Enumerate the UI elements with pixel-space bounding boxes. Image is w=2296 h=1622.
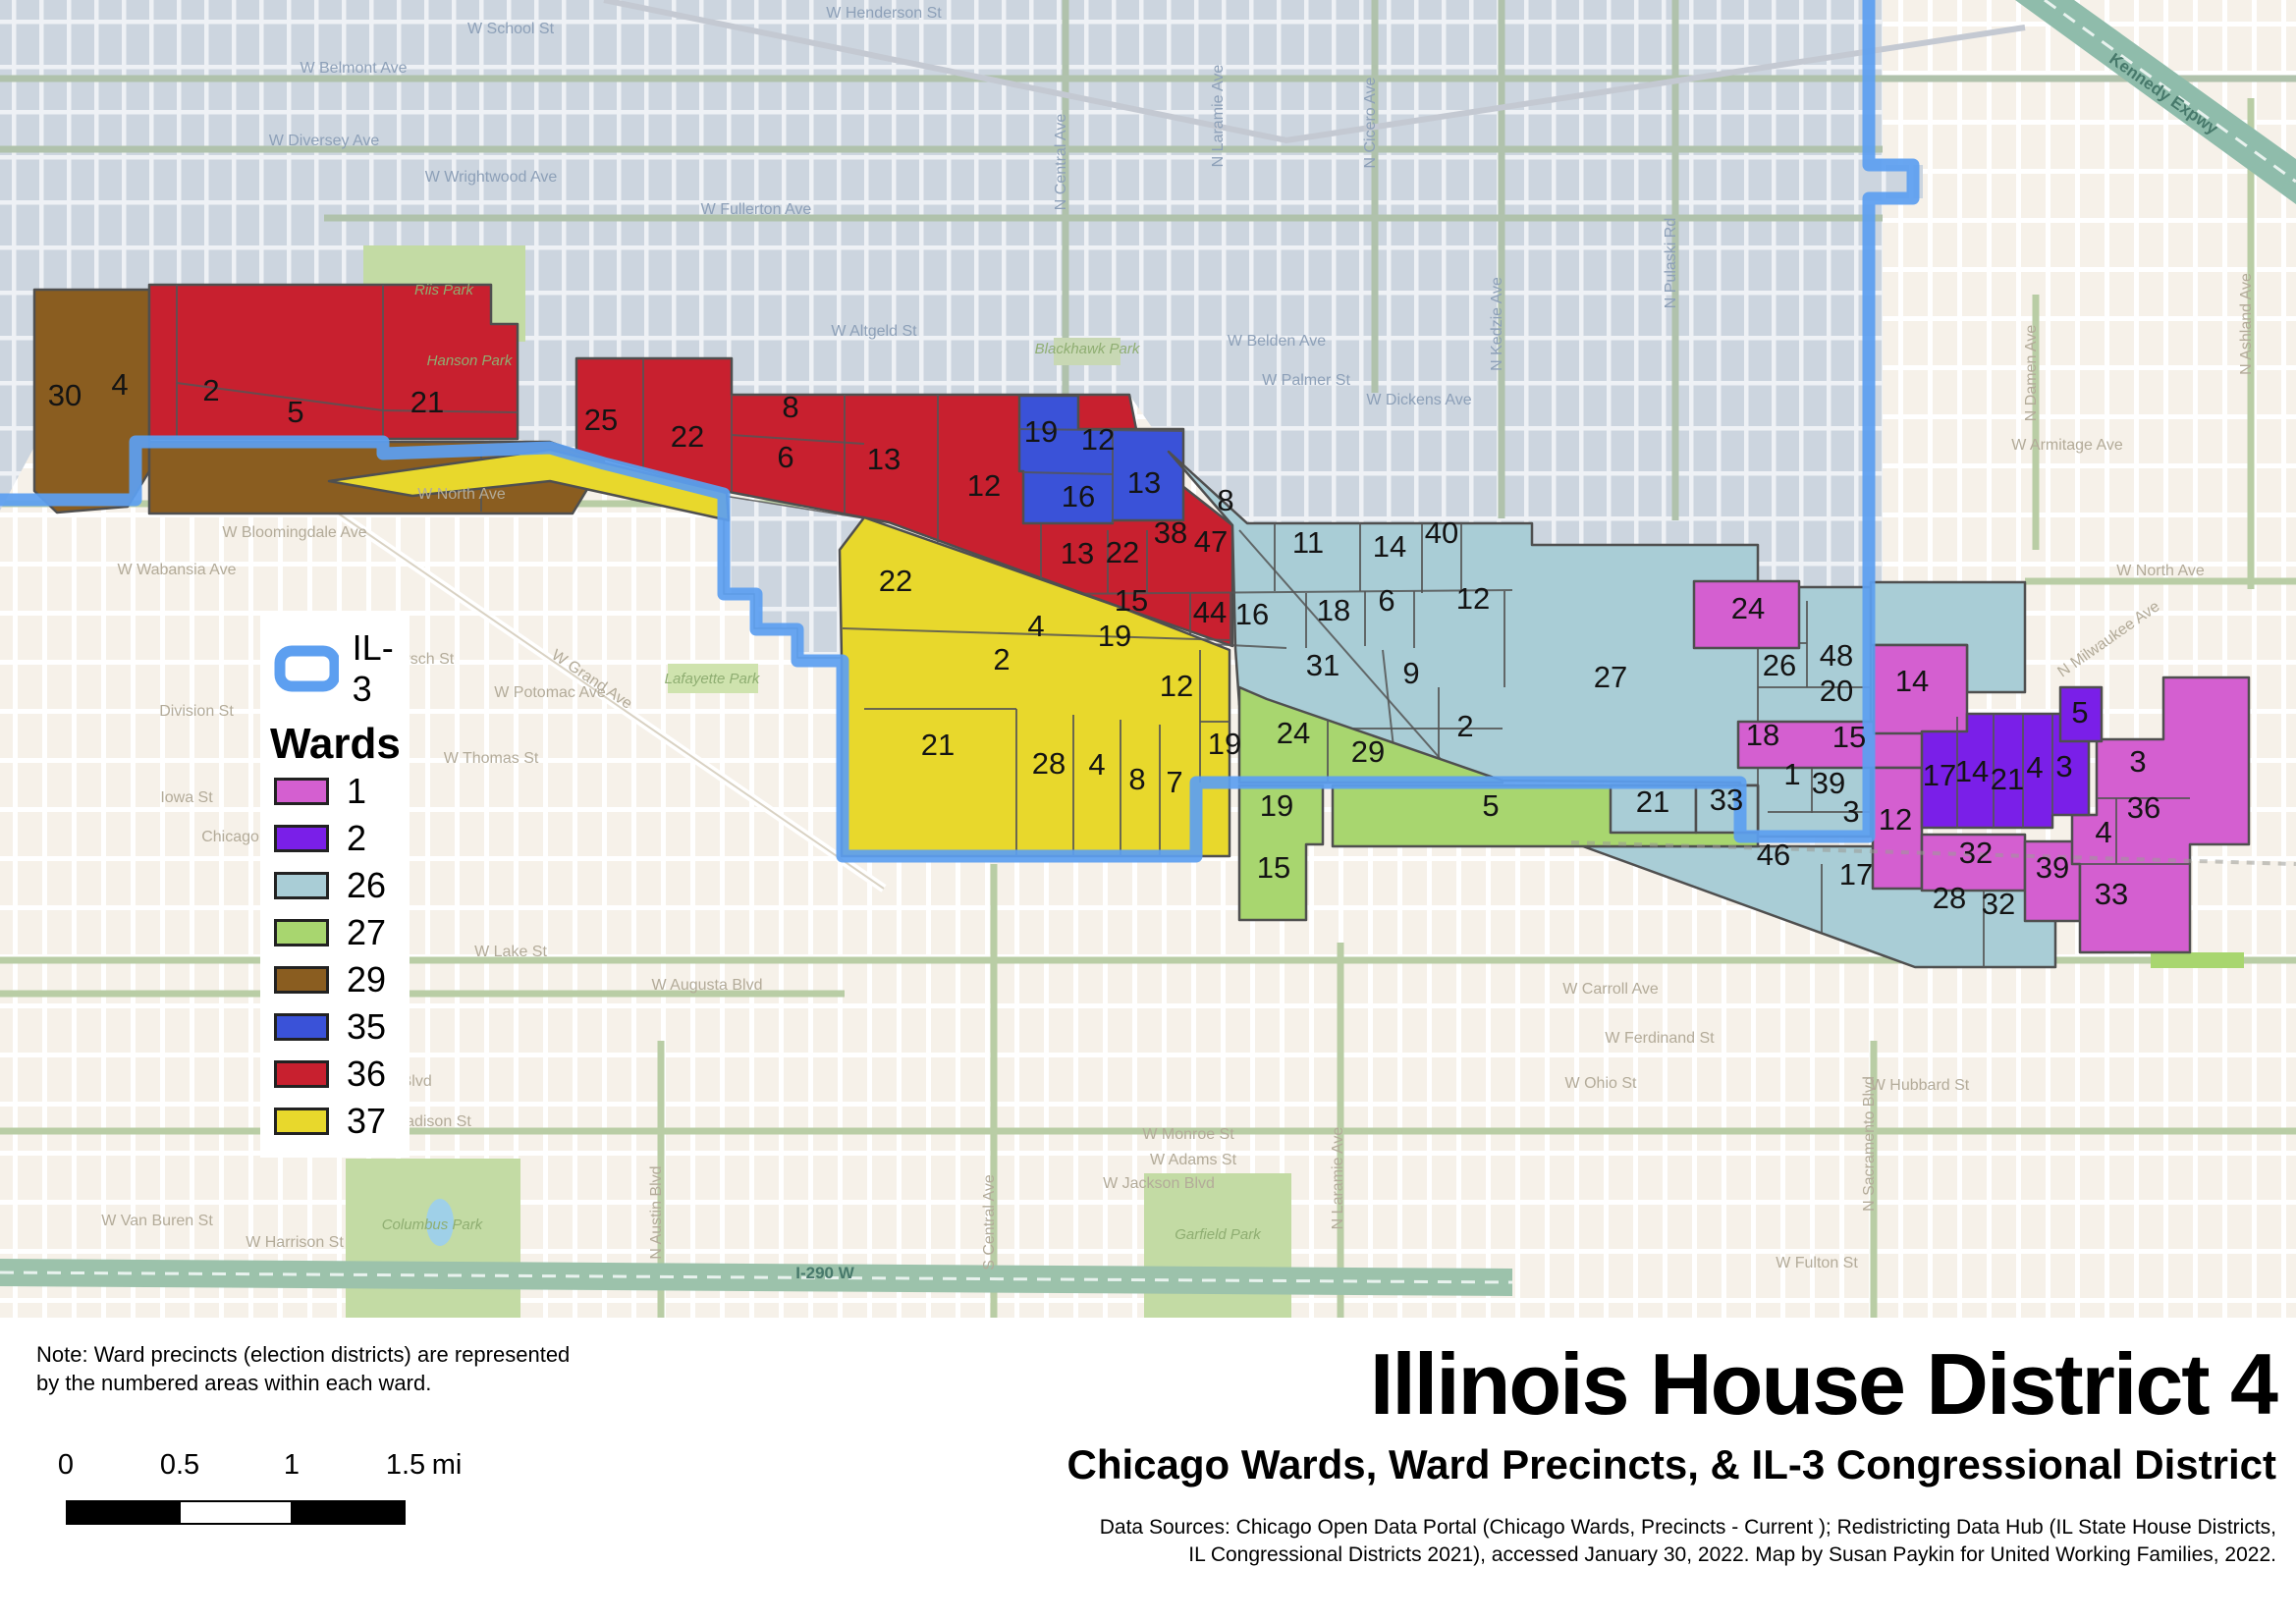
legend-swatch (274, 1108, 329, 1135)
precinct-label: 24 (1731, 591, 1765, 625)
legend-swatch (274, 1060, 329, 1088)
map-subtitle: Chicago Wards, Ward Precincts, & IL-3 Co… (1067, 1441, 2276, 1488)
park-label: Hanson Park (427, 352, 514, 369)
street-label: W Palmer St (1262, 372, 1350, 389)
precinct-label: 32 (1959, 836, 1993, 870)
precinct-label: 21 (410, 385, 444, 419)
precinct-label: 4 (2095, 815, 2111, 849)
legend-entry-ward-36: 36 (274, 1059, 410, 1088)
precinct-label: 13 (867, 442, 901, 476)
note-line1: Note: Ward precincts (election districts… (36, 1341, 570, 1370)
precinct-label: 30 (48, 378, 82, 412)
legend-entry-ward-1: 1 (274, 777, 410, 805)
precinct-label: 19 (1260, 788, 1293, 823)
precinct-label: 6 (1378, 583, 1394, 618)
precinct-label: 21 (1991, 762, 2024, 796)
precinct-label: 13 (1061, 536, 1094, 570)
street-label: W Ferdinand St (1605, 1030, 1715, 1047)
precinct-label: 12 (1879, 802, 1912, 837)
scale-unit: mi (432, 1449, 463, 1482)
street-label: W Wabansia Ave (118, 562, 237, 578)
precinct-label: 21 (1636, 784, 1669, 819)
legend-swatch (274, 778, 329, 805)
legend-swatch (274, 1013, 329, 1041)
street-label: N Ashland Ave (2238, 273, 2255, 375)
precinct-label: 9 (1402, 656, 1419, 690)
precinct-label: 44 (1193, 595, 1227, 629)
street-label: W Fullerton Ave (701, 201, 812, 218)
scale-seg-black1 (68, 1502, 181, 1523)
precinct-label: 38 (1154, 515, 1187, 550)
scale-tick: 1.5 (386, 1449, 425, 1482)
precinct-label: 5 (1482, 788, 1499, 823)
precinct-label: 47 (1194, 524, 1228, 559)
street-label: N Cicero Ave (1362, 77, 1379, 168)
legend-entry-ward-35: 35 (274, 1012, 410, 1041)
legend: IL-3 Wards 12262729353637 (260, 612, 410, 1158)
precinct-label: 20 (1820, 674, 1853, 708)
street-label: W Armitage Ave (2011, 437, 2123, 454)
precinct-label: 39 (1812, 766, 1845, 800)
title-block: Illinois House District 4 Chicago Wards,… (1067, 1341, 2276, 1568)
precinct-label: 4 (111, 367, 128, 402)
park-label: Columbus Park (382, 1216, 484, 1233)
map-poster: W Belmont AveW Diversey AveW Fullerton A… (0, 0, 2296, 1622)
legend-entry-ward-27: 27 (274, 918, 410, 946)
park-label: Riis Park (414, 282, 475, 298)
legend-il3-label: IL-3 (353, 627, 410, 710)
precinct-label: 27 (1594, 660, 1627, 694)
precinct-label: 11 (1292, 525, 1324, 560)
street-label: W Harrison St (246, 1234, 344, 1251)
street-label: W Lake St (474, 944, 547, 960)
street-label: W Belmont Ave (300, 60, 407, 77)
legend-entry-ward-37: 37 (274, 1107, 410, 1135)
street-label: W Henderson St (826, 5, 942, 22)
precinct-label: 3 (2129, 744, 2146, 779)
precinct-label: 5 (287, 395, 303, 429)
legend-entry-ward-29: 29 (274, 965, 410, 994)
precinct-label: 17 (1839, 857, 1873, 892)
street-label: W North Ave (417, 486, 506, 503)
note-line2: by the numbered areas within each ward. (36, 1370, 570, 1398)
precinct-label: 14 (1895, 664, 1929, 698)
street-label: N Kedzie Ave (1489, 277, 1505, 371)
precinct-label: 1 (1783, 757, 1800, 791)
legend-ward-number: 2 (347, 818, 366, 859)
precinct-label: 18 (1746, 718, 1779, 752)
precinct-label: 15 (1832, 720, 1866, 754)
street-label: N Sacramento Blvd (1861, 1076, 1878, 1212)
street-label: W Monroe St (1142, 1126, 1234, 1143)
street-label: W Ohio St (1565, 1075, 1637, 1092)
legend-ward-number: 29 (347, 959, 386, 1000)
precinct-label: 2 (993, 642, 1010, 676)
precinct-label: 39 (2036, 850, 2069, 885)
precinct-label: 12 (1160, 669, 1193, 703)
precinct-label: 21 (921, 728, 955, 762)
legend-swatch (274, 966, 329, 994)
precinct-label: 28 (1933, 881, 1966, 915)
precinct-label: 33 (1710, 783, 1743, 817)
precinct-label: 28 (1032, 746, 1066, 781)
precinct-label: 25 (584, 403, 618, 437)
street-label: W Bloomingdale Ave (222, 524, 366, 541)
street-label: W Belden Ave (1228, 333, 1326, 350)
scale-tick: 0.5 (160, 1449, 199, 1482)
park-label: Lafayette Park (665, 671, 761, 687)
il3-boundary-icon (272, 645, 339, 692)
precinct-label: 29 (1351, 734, 1385, 769)
legend-ward-number: 35 (347, 1006, 386, 1048)
map-title: Illinois House District 4 (1067, 1341, 2276, 1428)
street-label: I-290 W (795, 1264, 854, 1282)
precinct-label: 40 (1425, 515, 1458, 550)
precinct-label: 19 (1098, 619, 1131, 653)
precinct-label: 13 (1127, 465, 1161, 500)
street-label: W Adams St (1150, 1152, 1237, 1168)
legend-swatch (274, 872, 329, 899)
precinct-label: 33 (2095, 877, 2128, 911)
precinct-label: 4 (1088, 747, 1105, 782)
scale-bar-graphic (66, 1500, 406, 1525)
street-label: Division St (159, 703, 234, 720)
street-label: W School St (467, 21, 555, 37)
precinct-label: 12 (1456, 581, 1490, 616)
street-label: W Van Buren St (101, 1213, 213, 1229)
precinct-label: 3 (1842, 794, 1859, 829)
precinct-label: 12 (1081, 422, 1115, 457)
precinct-label: 19 (1024, 414, 1058, 449)
street-label: N Laramie Ave (1330, 1127, 1346, 1230)
precinct-label: 16 (1062, 479, 1095, 514)
precinct-label: 2 (1456, 709, 1473, 743)
legend-ward-number: 27 (347, 912, 386, 953)
legend-ward-number: 26 (347, 865, 386, 906)
precinct-label: 15 (1115, 583, 1148, 618)
precinct-label: 22 (671, 419, 704, 454)
precinct-label: 26 (1763, 648, 1796, 682)
street-label: W Jackson Blvd (1103, 1175, 1215, 1192)
precinct-label: 14 (1373, 529, 1406, 564)
precinct-label: 3 (2055, 749, 2072, 784)
precinct-label: 7 (1166, 765, 1182, 799)
legend-entry-ward-26: 26 (274, 871, 410, 899)
precinct-label: 12 (967, 468, 1001, 503)
precinct-label: 15 (1257, 850, 1290, 885)
precinct-label: 48 (1820, 638, 1853, 673)
precinct-label: 6 (777, 440, 793, 474)
street-label: W Carroll Ave (1562, 981, 1659, 998)
precinct-label: 22 (879, 564, 912, 598)
precinct-label: 8 (782, 390, 798, 424)
precinct-label: 31 (1306, 648, 1339, 682)
street-label: N Laramie Ave (1210, 65, 1227, 168)
street-label: W Dickens Ave (1366, 392, 1471, 408)
precinct-label: 18 (1317, 593, 1350, 627)
legend-ward-number: 37 (347, 1101, 386, 1142)
legend-entry-ward-2: 2 (274, 824, 410, 852)
sources-line2: IL Congressional Districts 2021), access… (1067, 1541, 2276, 1569)
precinct-label: 8 (1128, 762, 1145, 796)
street-label: N Damen Ave (2023, 325, 2040, 422)
precinct-label: 17 (1923, 758, 1956, 792)
legend-ward-number: 36 (347, 1054, 386, 1095)
legend-il3-row: IL-3 (272, 627, 410, 710)
street-label: N Central Ave (1053, 114, 1069, 211)
precinct-label: 19 (1208, 727, 1241, 761)
legend-swatch (274, 919, 329, 946)
legend-wards-title: Wards (270, 720, 410, 769)
street-label: W Altgeld St (831, 323, 917, 340)
street-label: W Wrightwood Ave (425, 169, 558, 186)
precinct-label: 2 (202, 373, 219, 407)
scale-tick: 1 (284, 1449, 300, 1482)
precinct-label: 22 (1106, 535, 1139, 569)
map-note: Note: Ward precincts (election districts… (36, 1341, 570, 1397)
street-label: W Diversey Ave (269, 133, 380, 149)
street-label: N Pulaski Rd (1663, 218, 1679, 308)
precinct-label: 32 (1982, 887, 2015, 921)
street-label: N Austin Blvd (648, 1165, 665, 1259)
precinct-label: 16 (1235, 597, 1269, 631)
scale-seg-black2 (291, 1502, 404, 1523)
precinct-label: 4 (2026, 750, 2043, 784)
precinct-label: 24 (1277, 716, 1310, 750)
data-sources: Data Sources: Chicago Open Data Portal (… (1067, 1514, 2276, 1568)
precinct-label: 4 (1027, 609, 1044, 643)
precinct-label: 46 (1757, 838, 1790, 872)
precinct-label: 36 (2127, 790, 2160, 825)
street-label: W Thomas St (444, 750, 539, 767)
park-label: Blackhawk Park (1035, 341, 1141, 357)
street-label: Iowa St (160, 789, 213, 806)
precinct-label: 14 (1955, 754, 1989, 788)
precinct-label: 8 (1217, 483, 1233, 517)
legend-ward-number: 1 (347, 771, 366, 812)
street-label: W Fulton St (1776, 1255, 1858, 1271)
precinct-label: 5 (2071, 695, 2088, 730)
street-label: W Hubbard St (1871, 1077, 1970, 1094)
street-label: W North Ave (2116, 563, 2205, 579)
legend-rows: 12262729353637 (260, 777, 410, 1135)
street-label: W Augusta Blvd (652, 977, 763, 994)
park-label: Garfield Park (1175, 1226, 1262, 1243)
legend-swatch (274, 825, 329, 852)
sources-line1: Data Sources: Chicago Open Data Portal (… (1067, 1514, 2276, 1541)
street-label: S Central Ave (981, 1174, 998, 1271)
scale-tick: 0 (58, 1449, 74, 1482)
scale-seg-white (181, 1502, 292, 1523)
